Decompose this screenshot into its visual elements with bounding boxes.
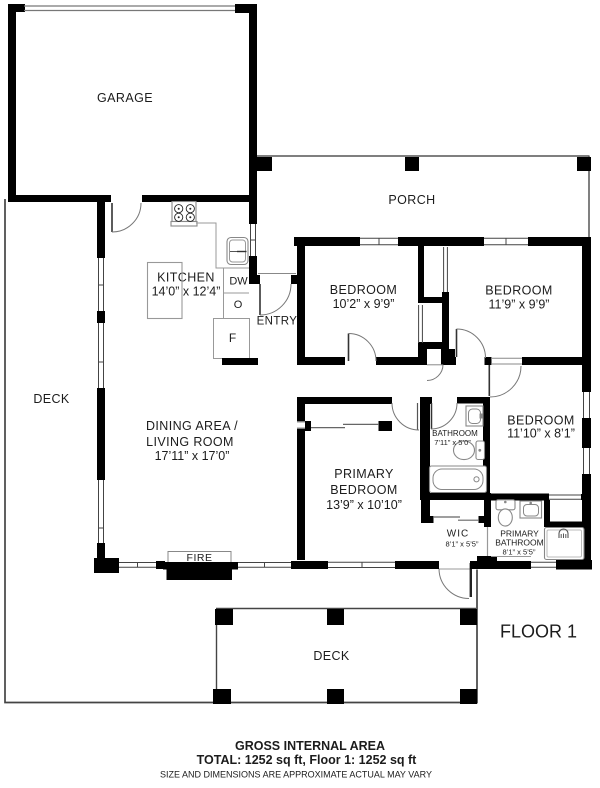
svg-text:KITCHEN: KITCHEN [157, 271, 215, 285]
svg-text:BEDROOM: BEDROOM [507, 414, 574, 428]
svg-text:ENTRY: ENTRY [257, 316, 298, 328]
svg-text:O: O [234, 299, 243, 311]
svg-text:BATHROOM: BATHROOM [432, 429, 478, 438]
svg-text:11’10” x 8’1”: 11’10” x 8’1” [507, 427, 575, 441]
svg-text:8’1” x 5’5”: 8’1” x 5’5” [503, 547, 536, 556]
svg-text:GARAGE: GARAGE [97, 91, 153, 105]
svg-text:PRIMARY: PRIMARY [334, 467, 394, 481]
svg-text:PORCH: PORCH [388, 193, 435, 207]
svg-text:BATHROOM: BATHROOM [495, 538, 543, 548]
svg-text:14’0” x 12’4”: 14’0” x 12’4” [152, 285, 221, 299]
svg-text:BEDROOM: BEDROOM [330, 483, 397, 497]
svg-text:13’9” x 10’10”: 13’9” x 10’10” [326, 498, 402, 512]
svg-text:F: F [229, 331, 236, 345]
svg-text:BEDROOM: BEDROOM [485, 284, 552, 298]
svg-text:TOTAL: 1252 sq ft, Floor 1: 12: TOTAL: 1252 sq ft, Floor 1: 1252 sq ft [197, 753, 418, 767]
svg-text:11’9” x 9’9”: 11’9” x 9’9” [489, 298, 550, 312]
svg-text:LIVING ROOM: LIVING ROOM [146, 435, 234, 449]
svg-text:BEDROOM: BEDROOM [330, 283, 397, 297]
svg-text:7’11” x 5’0”: 7’11” x 5’0” [434, 438, 471, 447]
svg-text:GROSS INTERNAL AREA: GROSS INTERNAL AREA [235, 739, 385, 753]
svg-text:17’11” x 17’0”: 17’11” x 17’0” [155, 449, 230, 463]
svg-text:FLOOR 1: FLOOR 1 [500, 622, 577, 642]
svg-text:DW: DW [229, 276, 248, 288]
svg-text:SIZE AND DIMENSIONS ARE APPROX: SIZE AND DIMENSIONS ARE APPROXIMATE ACTU… [160, 770, 432, 780]
svg-text:DINING AREA /: DINING AREA / [146, 419, 238, 433]
svg-text:10’2” x 9’9”: 10’2” x 9’9” [333, 297, 395, 311]
svg-text:8’1” x 5’5”: 8’1” x 5’5” [446, 539, 479, 548]
svg-text:DECK: DECK [33, 392, 70, 406]
svg-text:WIC: WIC [447, 529, 469, 540]
svg-text:DECK: DECK [313, 649, 350, 663]
